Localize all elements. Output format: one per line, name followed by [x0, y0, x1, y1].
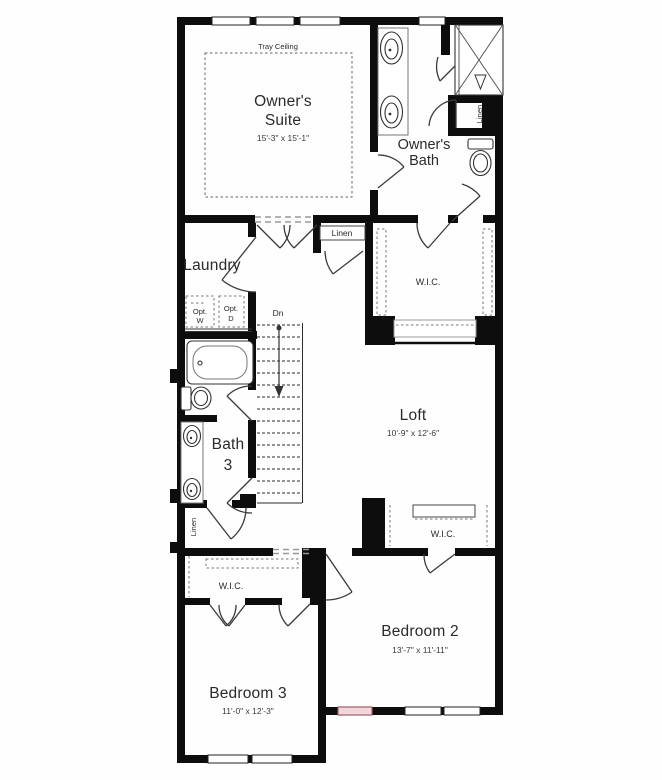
opt-washer-label-line1: Opt.: [193, 307, 207, 316]
wall-chunk: [362, 498, 385, 550]
wall: [310, 548, 326, 605]
door-linen-downstairs: [207, 508, 246, 539]
sink: [381, 32, 403, 64]
wall: [248, 420, 256, 478]
bath-3-label-line1: Bath: [212, 436, 245, 453]
wall: [370, 190, 378, 215]
bedroom-2-label: Bedroom 2: [381, 623, 459, 640]
highlighted-window: [338, 707, 372, 715]
wall: [310, 598, 326, 605]
wall: [248, 223, 256, 237]
floor-plan-page: Tray Ceiling Owner's Suite 15'-3" x 15'-…: [0, 0, 662, 780]
laundry-label: Laundry: [183, 257, 240, 274]
wall: [313, 215, 370, 223]
door-bedroom-3: [279, 604, 310, 626]
toilet: [181, 387, 211, 410]
floor-plan: Tray Ceiling Owner's Suite 15'-3" x 15'-…: [0, 0, 662, 780]
owners-suite-label-line1: Owner's: [254, 93, 312, 110]
shelf-dashes: [206, 559, 298, 568]
wall: [302, 548, 310, 598]
bathtub: [187, 341, 253, 384]
window: [419, 17, 445, 25]
wall-chunk: [365, 316, 395, 345]
door-linen-hall: [325, 251, 363, 274]
bedroom-3-dims: 11'-0" x 12'-3": [222, 706, 274, 716]
door-owners-bath-entry: [378, 155, 404, 188]
toilet: [468, 139, 493, 176]
shelf-dashes: [483, 229, 492, 315]
wall-stub: [441, 25, 450, 55]
linen-hall-label: Linen: [332, 228, 353, 238]
window: [212, 17, 250, 25]
wall: [370, 25, 378, 152]
window: [444, 707, 480, 715]
wic-bedroom-2-label: W.I.C.: [431, 529, 456, 539]
wic-bedroom-3-label: W.I.C.: [219, 581, 244, 591]
wall: [177, 548, 273, 556]
bedroom-3-label: Bedroom 3: [209, 685, 287, 702]
sink: [184, 426, 201, 447]
wall: [185, 215, 255, 223]
owners-suite-label-line2: Suite: [265, 112, 301, 129]
wall: [455, 548, 503, 556]
linen-downstairs-label: Linen: [189, 518, 198, 536]
shelf: [413, 505, 475, 517]
shelf: [394, 320, 476, 337]
bath-3-label-line2: 3: [224, 457, 233, 474]
wall: [483, 215, 503, 223]
window: [405, 707, 441, 715]
loft-label: Loft: [400, 407, 427, 424]
linen-owners-bath-label: Linen: [475, 105, 484, 123]
door-bath-3-upper: [227, 386, 252, 421]
wall: [177, 331, 257, 339]
sink: [381, 96, 403, 128]
interior-walls: [177, 25, 503, 605]
wic-owners-label: W.I.C.: [416, 277, 441, 287]
wall-pier: [170, 369, 185, 383]
laundry-counter: [185, 329, 252, 332]
wall-chunk: [475, 316, 503, 345]
owners-bath-label-line1: Owner's: [398, 137, 451, 153]
wall: [177, 415, 217, 422]
shelf-dashes: [377, 229, 386, 315]
window: [208, 755, 248, 763]
window: [256, 17, 294, 25]
wall: [245, 598, 282, 605]
wall: [177, 598, 210, 605]
window: [300, 17, 340, 25]
wall: [240, 494, 256, 502]
opt-washer-label-line2: W: [196, 316, 204, 325]
opt-dryer-label-line1: Opt.: [224, 304, 238, 313]
door-owners-suite-double: [257, 225, 317, 248]
opt-dryer-label-line2: D: [228, 314, 234, 323]
wall: [370, 215, 418, 223]
owners-suite-dims: 15'-3" x 15'-1": [257, 133, 309, 143]
sink: [184, 479, 201, 500]
door-wic-bedroom-3-double: [210, 605, 245, 626]
bedroom-2-dims: 13'-7" x 11'-11": [392, 645, 448, 655]
closet-shelving: [189, 226, 492, 597]
staircase: [257, 323, 303, 503]
tray-ceiling-label: Tray Ceiling: [258, 42, 298, 51]
owners-bath-label-line2: Bath: [409, 153, 439, 169]
window: [252, 755, 292, 763]
opening-dashes: [255, 217, 313, 222]
shower: [455, 25, 503, 95]
door-bedroom-2: [326, 554, 352, 600]
loft-dims: 10'-9" x 12'-6": [387, 428, 439, 438]
door-wic-owners: [417, 223, 450, 248]
stairs-dn-label: Dn: [273, 308, 284, 318]
wall: [452, 128, 503, 136]
door-wic-bedroom-2: [424, 554, 455, 573]
